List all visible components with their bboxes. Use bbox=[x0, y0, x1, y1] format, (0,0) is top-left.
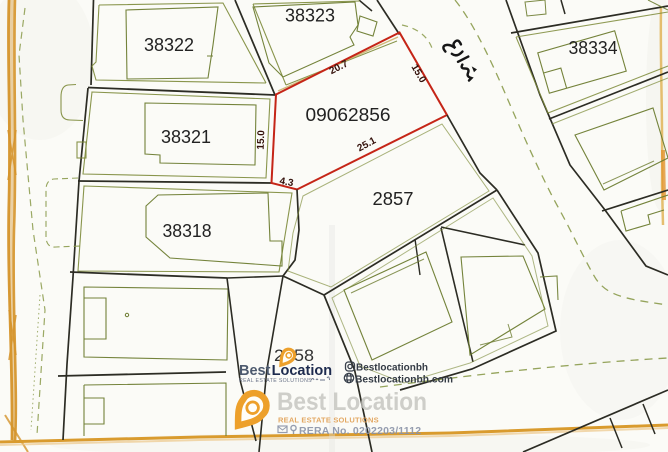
svg-text:Best Location: Best Location bbox=[239, 363, 332, 379]
svg-text:REAL ESTATE SOLUTIONS: REAL ESTATE SOLUTIONS bbox=[278, 416, 379, 425]
svg-text:Bestlocationbh: Bestlocationbh bbox=[356, 362, 428, 374]
svg-text:38321: 38321 bbox=[161, 126, 211, 147]
svg-text:38318: 38318 bbox=[163, 220, 212, 241]
svg-text:38334: 38334 bbox=[569, 37, 618, 58]
svg-text:RERA No. 0202203/1112: RERA No. 0202203/1112 bbox=[299, 425, 421, 437]
svg-text:Best Location: Best Location bbox=[277, 388, 427, 416]
svg-text:15.0: 15.0 bbox=[256, 130, 268, 150]
svg-text:09062856: 09062856 bbox=[306, 104, 391, 125]
svg-text:REAL ESTATE SOLUTIONS: REAL ESTATE SOLUTIONS bbox=[239, 378, 312, 384]
svg-text:38323: 38323 bbox=[285, 5, 335, 26]
svg-text:2857: 2857 bbox=[373, 188, 414, 209]
svg-text:Bestlocationbh.com: Bestlocationbh.com bbox=[355, 374, 453, 386]
svg-text:38322: 38322 bbox=[144, 34, 194, 55]
